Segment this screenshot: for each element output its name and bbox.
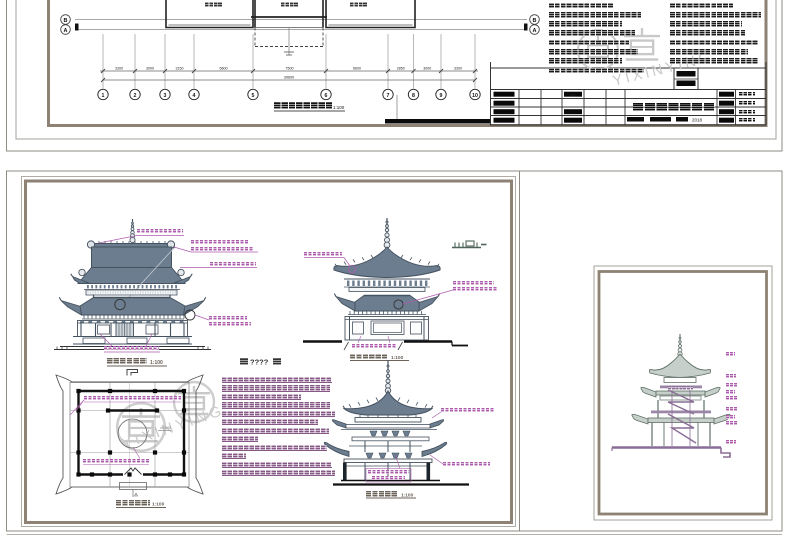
svg-text:2850: 2850 (397, 67, 405, 71)
svg-text:3150: 3150 (176, 67, 184, 71)
svg-text:A: A (533, 28, 537, 34)
svg-text:B: B (64, 18, 68, 24)
svg-text:6: 6 (325, 93, 328, 99)
svg-text:9: 9 (440, 93, 443, 99)
svg-text:A: A (64, 28, 68, 34)
svg-text:±0.000: ±0.000 (160, 426, 171, 430)
svg-text:2018: 2018 (692, 118, 703, 123)
svg-text:10: 10 (472, 93, 478, 99)
svg-text:7500: 7500 (286, 67, 294, 71)
svg-text:6600: 6600 (220, 67, 228, 71)
svg-text:2 0: 2 0 (571, 94, 576, 98)
svg-text:B: B (533, 18, 537, 24)
svg-text:1:100: 1:100 (150, 360, 163, 366)
svg-text:3300: 3300 (115, 67, 123, 71)
svg-text:5: 5 (252, 93, 255, 99)
svg-text:4: 4 (193, 93, 196, 99)
svg-text:3000: 3000 (423, 67, 431, 71)
svg-text:3300: 3300 (454, 67, 462, 71)
svg-text:1:100: 1:100 (333, 105, 345, 110)
svg-text:7: 7 (387, 93, 390, 99)
svg-text:1: 1 (102, 93, 105, 99)
svg-text:3: 3 (164, 93, 167, 99)
svg-text:3000: 3000 (146, 67, 154, 71)
svg-text:8: 8 (412, 93, 415, 99)
svg-text:1:100: 1:100 (152, 502, 165, 508)
svg-text:39600: 39600 (284, 76, 295, 80)
svg-text:2: 2 (134, 93, 137, 99)
svg-text:????: ???? (250, 358, 269, 367)
svg-text:6600: 6600 (353, 67, 361, 71)
